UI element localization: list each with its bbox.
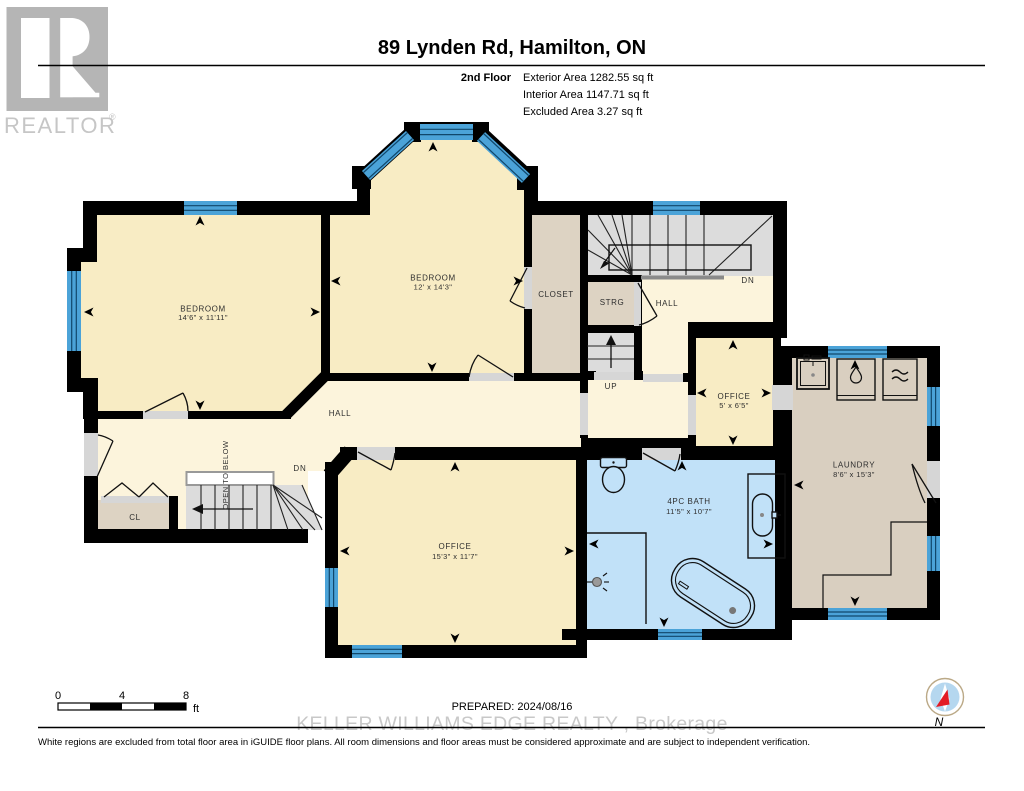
svg-text:89 Lynden Rd, Hamilton, ON: 89 Lynden Rd, Hamilton, ON	[378, 37, 646, 59]
svg-text:Excluded Area 3.27 sq ft: Excluded Area 3.27 sq ft	[523, 106, 642, 118]
svg-text:0: 0	[55, 690, 61, 702]
svg-text:HALL: HALL	[656, 299, 678, 308]
svg-text:OPEN TO BELOW: OPEN TO BELOW	[221, 440, 230, 510]
svg-text:White regions are excluded fro: White regions are excluded from total fl…	[38, 737, 810, 748]
svg-text:KELLER WILLIAMS EDGE REALTY ,: KELLER WILLIAMS EDGE REALTY , Brokerage	[296, 713, 727, 735]
svg-text:LAUNDRY: LAUNDRY	[833, 461, 875, 470]
svg-text:4: 4	[119, 690, 125, 702]
svg-text:Exterior Area 1282.55 sq ft: Exterior Area 1282.55 sq ft	[523, 72, 653, 84]
svg-text:15'3" x 11'7": 15'3" x 11'7"	[432, 552, 478, 561]
svg-text:BEDROOM: BEDROOM	[410, 274, 456, 283]
svg-text:PREPARED: 2024/08/16: PREPARED: 2024/08/16	[452, 701, 573, 713]
svg-text:HALL: HALL	[329, 409, 351, 418]
svg-text:N: N	[935, 715, 944, 729]
svg-text:8: 8	[183, 690, 189, 702]
svg-text:ft: ft	[193, 703, 199, 715]
svg-text:2nd Floor: 2nd Floor	[461, 72, 512, 84]
svg-text:DN: DN	[741, 276, 754, 285]
svg-text:®: ®	[109, 112, 116, 122]
svg-text:DN: DN	[293, 464, 306, 473]
svg-text:OFFICE: OFFICE	[718, 392, 751, 401]
svg-text:4PC BATH: 4PC BATH	[667, 497, 710, 506]
svg-text:Interior Area 1147.71 sq ft: Interior Area 1147.71 sq ft	[523, 89, 649, 101]
svg-text:12' x 14'3": 12' x 14'3"	[414, 283, 453, 292]
svg-text:11'5" x 10'7": 11'5" x 10'7"	[666, 507, 712, 516]
svg-text:STRG: STRG	[600, 298, 625, 307]
svg-text:OFFICE: OFFICE	[439, 542, 472, 551]
svg-text:CLOSET: CLOSET	[538, 290, 574, 299]
svg-text:5' x 6'5": 5' x 6'5"	[719, 401, 749, 410]
svg-text:REALTOR: REALTOR	[4, 113, 116, 138]
svg-text:14'6" x 11'11": 14'6" x 11'11"	[178, 313, 228, 322]
svg-text:8'6" x 15'3": 8'6" x 15'3"	[833, 470, 875, 479]
svg-text:UP: UP	[605, 382, 618, 391]
svg-text:CL: CL	[129, 513, 140, 522]
